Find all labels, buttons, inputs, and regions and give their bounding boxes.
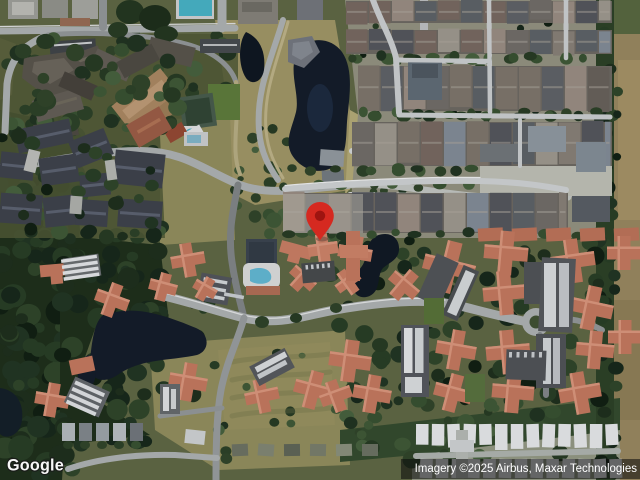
svg-text:Google: Google [7,457,64,475]
